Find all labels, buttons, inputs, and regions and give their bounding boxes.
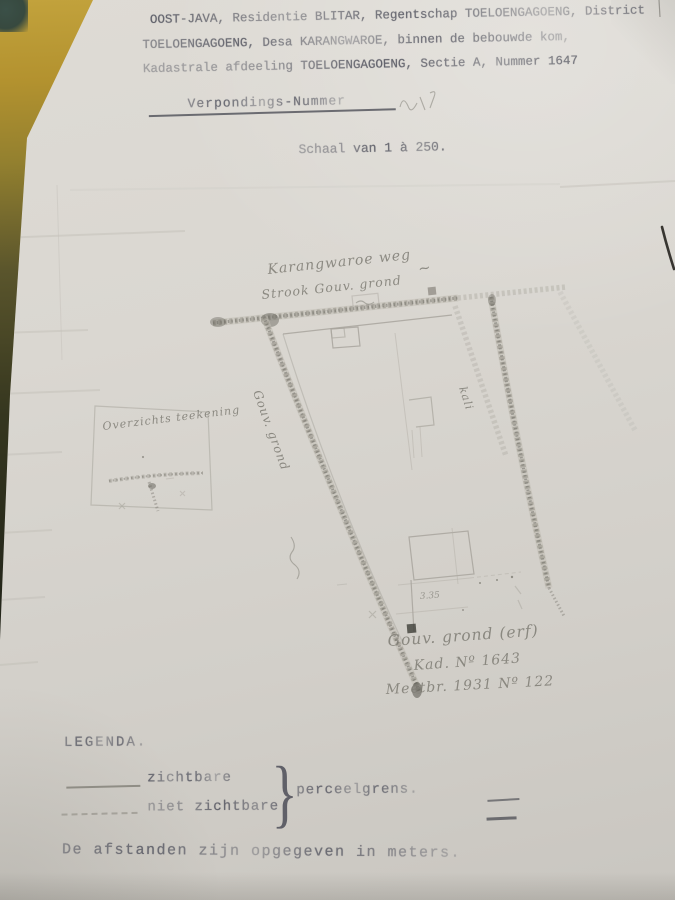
legend-brace: }: [271, 750, 298, 837]
legend-line-dashed: [62, 812, 138, 816]
bottom-shadow: [0, 872, 675, 900]
legend-line-solid: [66, 785, 140, 789]
legend-block: LEGENDA. zichtbare niet zichtbare } perc…: [0, 0, 675, 900]
photographed-document: van het OOST-JAVA, Residentie BLITAR, Re…: [0, 0, 675, 900]
legend-footnote: De afstanden zijn opgegeven in meters.: [62, 841, 461, 861]
legend-label-visible: zichtbare: [147, 770, 232, 787]
pencil-dash-2: [487, 816, 517, 820]
paper-sheet: van het OOST-JAVA, Residentie BLITAR, Re…: [0, 0, 675, 900]
pencil-dash-1: [487, 798, 519, 802]
legend-title: LEGENDA.: [64, 734, 147, 751]
legend-brace-label: perceelgrens.: [296, 782, 418, 799]
table-corner-object: [0, 0, 28, 32]
legend-label-not-visible: niet zichtbare: [147, 799, 279, 816]
